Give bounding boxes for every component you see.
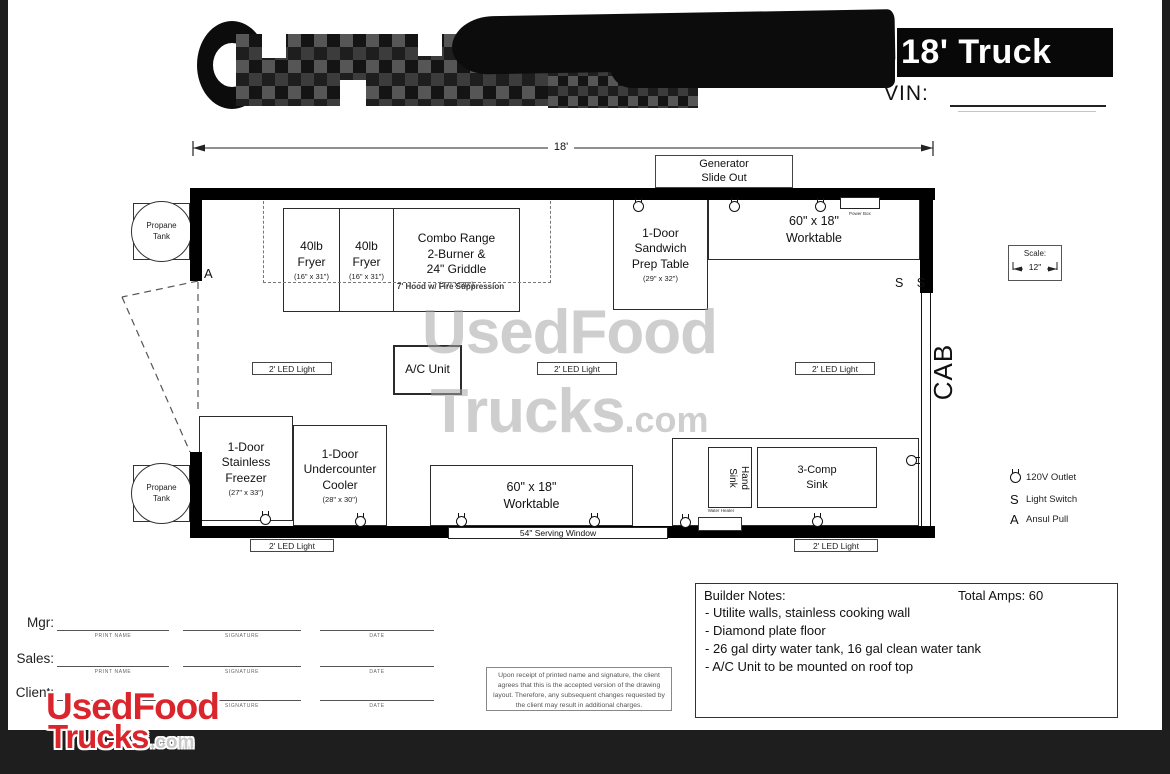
scale-value: 12" [1023, 262, 1047, 272]
truck-wall-left-lower [190, 452, 202, 538]
sig-row-label-mgr: Mgr: [8, 615, 54, 630]
water-heater-label: Water Heater [699, 508, 743, 513]
led-light-bottom-right: 2' LED Light [794, 539, 878, 552]
generator-slide-out: Generator Slide Out [655, 155, 793, 188]
power-box [840, 197, 880, 209]
vin-label: VIN: [884, 82, 929, 106]
combo-range-label: Combo Range 2-Burner & 24" Griddle [418, 231, 495, 278]
propane-tank-label: Propane Tank [131, 463, 192, 524]
outlet-icon [1010, 470, 1026, 485]
cooler-dims: (28" x 30") [323, 495, 358, 504]
sig-line-date[interactable] [320, 630, 434, 631]
redacted-pixel-gap [262, 34, 286, 58]
outlet-icon [812, 516, 823, 527]
three-comp-sink-label: 3-Comp Sink [797, 463, 836, 492]
builder-note-item: - A/C Unit to be mounted on roof top [705, 659, 913, 674]
scale-label: Scale: [1009, 249, 1061, 258]
fryer-2-dims: (16" x 31") [349, 272, 384, 281]
worktable-top-label: 60" x 18" Worktable [786, 213, 842, 246]
propane-tank-bottom: Propane Tank [133, 465, 190, 522]
builder-notes-title: Builder Notes: [704, 588, 786, 603]
fryer-1-label: 40lb Fryer [298, 239, 326, 270]
sig-sub-date: DATE [317, 703, 437, 709]
led-label: 2' LED Light [554, 364, 600, 374]
sig-sub-print: PRINT NAME [53, 633, 173, 639]
fryer-1: 40lb Fryer (16" x 31") [283, 208, 340, 312]
cooler-label: 1-Door Undercounter Cooler [304, 447, 377, 494]
led-light-mid-center: 2' LED Light [537, 362, 617, 375]
led-light-bottom-left: 2' LED Light [250, 539, 334, 552]
stainless-freezer: 1-Door Stainless Freezer (27" x 33") [199, 416, 293, 521]
left-edge-bar [0, 0, 8, 774]
sig-sub-signature: SIGNATURE [182, 633, 302, 639]
freezer-label: 1-Door Stainless Freezer [222, 440, 271, 487]
outlet-icon [815, 201, 826, 212]
sandwich-prep-table: 1-Door Sandwich Prep Table (29" x 32") [613, 199, 708, 310]
redacted-pixel-gap [418, 34, 442, 56]
builder-note-item: - Diamond plate floor [705, 623, 826, 638]
led-label: 2' LED Light [269, 541, 315, 551]
legend-switch-row: S Light Switch [1010, 492, 1077, 507]
total-amps: Total Amps: 60 [958, 588, 1043, 603]
three-comp-sink: 3-Comp Sink [757, 447, 877, 508]
outlet-icon [456, 516, 467, 527]
legend-outlet-row: 120V Outlet [1010, 470, 1076, 485]
hand-sink-label: Hand Sink [710, 448, 750, 508]
sig-line-signature[interactable] [183, 666, 301, 667]
right-edge-bar [1162, 0, 1170, 774]
ac-unit: A/C Unit [393, 345, 462, 395]
serving-window-label: 54" Serving Window [520, 528, 596, 538]
switch-symbol: S [1010, 492, 1026, 507]
propane-tank-top: Propane Tank [133, 203, 190, 260]
freezer-dims: (27" x 33") [229, 488, 264, 497]
watermark-suffix: .com [624, 399, 708, 440]
cab-partition-line [921, 293, 922, 526]
outlet-icon [680, 517, 691, 528]
outlet-icon [589, 516, 600, 527]
cab-partition-line-2 [930, 293, 931, 526]
prep-table-dims: (29" x 32") [643, 274, 678, 283]
sig-line-date[interactable] [320, 700, 434, 701]
led-label: 2' LED Light [269, 364, 315, 374]
builder-note-item: - 26 gal dirty water tank, 16 gal clean … [705, 641, 981, 656]
sig-line-print[interactable] [57, 630, 169, 631]
builder-notes-box: Builder Notes: Total Amps: 60 - Utilite … [695, 583, 1118, 718]
propane-tank-label: Propane Tank [131, 201, 192, 262]
redacted-swoosh-2 [610, 44, 895, 88]
legend-ansul-label: Ansul Pull [1026, 514, 1068, 525]
outlet-icon [260, 514, 271, 525]
sig-row-label-sales: Sales: [8, 651, 54, 666]
combo-range: Combo Range 2-Burner & 24" Griddle (27" … [393, 208, 520, 312]
sig-sub-signature: SIGNATURE [182, 669, 302, 675]
power-box-label: Power Box [849, 211, 871, 216]
vin-line [950, 105, 1106, 107]
legend-ansul-row: A Ansul Pull [1010, 512, 1068, 527]
truck-title: 18' Truck [901, 33, 1052, 72]
cab-label: CAB [928, 332, 960, 412]
led-label: 2' LED Light [813, 541, 859, 551]
sig-line-signature[interactable] [183, 630, 301, 631]
hood-label: 7' Hood w/ Fire Suppression [348, 282, 553, 291]
led-light-mid-left: 2' LED Light [252, 362, 332, 375]
vin-line-faint [958, 111, 1096, 112]
prep-table-label: 1-Door Sandwich Prep Table [632, 226, 689, 273]
worktable-bottom-label: 60" x 18" Worktable [503, 479, 559, 512]
ansul-symbol: A [1010, 512, 1026, 527]
floorplan-sheet: 18' Truck VIN: 18' Generator Slide Out 7… [0, 0, 1170, 774]
truck-wall-left-upper [190, 188, 202, 281]
undercounter-cooler: 1-Door Undercounter Cooler (28" x 30") [293, 425, 387, 526]
outlet-icon [906, 455, 917, 466]
brand-line2: Trucks [48, 720, 148, 753]
serving-window: 54" Serving Window [448, 527, 668, 539]
sig-line-print[interactable] [57, 666, 169, 667]
sig-sub-date: DATE [317, 633, 437, 639]
outlet-icon [729, 201, 740, 212]
brand-suffix: .com [150, 733, 194, 752]
fryer-2: 40lb Fryer (16" x 31") [339, 208, 394, 312]
overall-dimension: 18' [548, 141, 574, 153]
redacted-pixel-gap [340, 80, 366, 106]
led-light-mid-right: 2' LED Light [795, 362, 875, 375]
worktable-top: 60" x 18" Worktable [708, 199, 920, 260]
water-heater-box [698, 517, 742, 531]
disclaimer-box: Upon receipt of printed name and signatu… [486, 667, 672, 711]
sig-line-date[interactable] [320, 666, 434, 667]
fryer-1-dims: (16" x 31") [294, 272, 329, 281]
outlet-icon [633, 201, 644, 212]
truck-title-bar: 18' Truck [897, 28, 1113, 77]
builder-note-item: - Utilite walls, stainless cooking wall [705, 605, 910, 620]
light-switch-markers: S S [895, 276, 930, 290]
fryer-2-label: 40lb Fryer [353, 239, 381, 270]
ansul-pull-marker: A [204, 266, 213, 281]
ac-unit-label: A/C Unit [405, 362, 450, 378]
outlet-icon [355, 516, 366, 527]
legend-switch-label: Light Switch [1026, 494, 1077, 505]
led-label: 2' LED Light [812, 364, 858, 374]
legend-outlet-label: 120V Outlet [1026, 472, 1076, 483]
sig-sub-date: DATE [317, 669, 437, 675]
sig-sub-print: PRINT NAME [53, 669, 173, 675]
